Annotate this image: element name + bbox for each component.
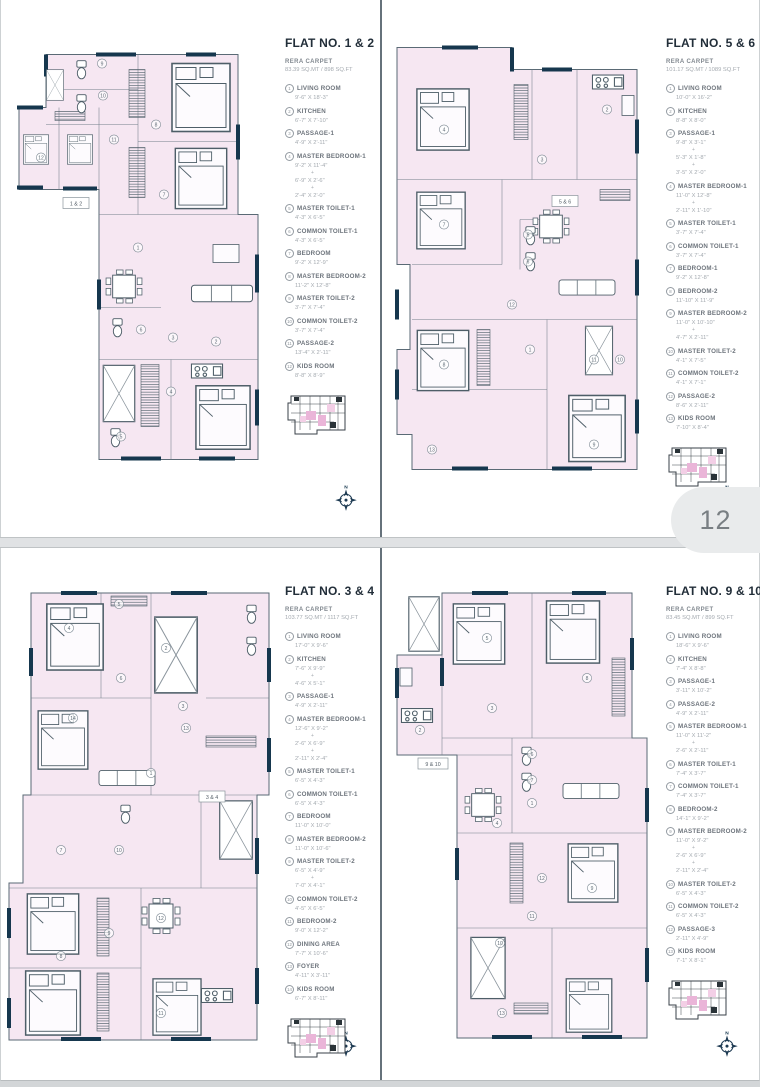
- plus-sign: +: [311, 748, 378, 754]
- room-number-marker-text: 1: [137, 245, 140, 251]
- room-number-marker-text: 12: [158, 916, 164, 922]
- room-number-marker-text: 6: [140, 327, 143, 333]
- room-number-marker-text: 10: [497, 941, 503, 947]
- plus-sign: +: [692, 860, 759, 866]
- room-name: FOYER: [297, 963, 319, 970]
- room-number: 11: [285, 339, 294, 348]
- room-name: MASTER BEDROOM-1: [297, 153, 366, 160]
- floor-plan-1-2: 123456789101112 1 & 2: [1, 28, 281, 496]
- room-item: 3PASSAGE-14'-9" X 2'-11": [285, 129, 378, 146]
- room-dimensions: 8'-8" X 8'-0": [676, 118, 759, 124]
- room-dimensions: 2'-11" X 2'-4": [295, 756, 378, 762]
- panel-flat-9-10: 12345678910111213 9 & 10 N FLAT NO. 9 & …: [382, 548, 760, 1080]
- room-number-marker-text: 10: [100, 93, 106, 99]
- room-number-marker-text: 13: [183, 726, 189, 732]
- panel-flat-5-6: 12345678910111213 5 & 6 N FLAT NO. 5 & 6…: [382, 0, 760, 537]
- room-dimensions: 7'-4" X 3'-7": [676, 771, 759, 777]
- room-item: 13KIDS ROOM7'-10" X 8'-4": [666, 414, 759, 431]
- room-dimensions: 6'-5" X 4'-3": [295, 801, 378, 807]
- room-number: 6: [666, 760, 675, 769]
- room-item: 13KIDS ROOM7'-1" X 8'-1": [666, 947, 759, 964]
- room-item: 8BEDROOM-214'-1" X 9'-2": [666, 805, 759, 822]
- plan-label-3-4: 3 & 4: [199, 791, 225, 802]
- room-name: PASSAGE-1: [297, 130, 334, 137]
- floor-plan-9-10: 12345678910111213 9 & 10: [382, 588, 662, 1053]
- page-number-indicator[interactable]: 12: [671, 487, 760, 553]
- room-dimensions: 7'-1" X 8'-1": [676, 958, 759, 964]
- room-dimensions: 2'-11" X 4'-9": [676, 936, 759, 942]
- svg-text:1 & 2: 1 & 2: [70, 202, 82, 208]
- room-item: 7BEDROOM-19'-2" X 12'-8": [666, 264, 759, 281]
- room-name: MASTER TOILET-1: [678, 220, 736, 227]
- pdf-viewer: 123456789101112 1 & 2 N FLAT NO. 1 & 2 R…: [0, 0, 760, 1087]
- room-dimensions: 2'-6" X 6'-9": [676, 853, 759, 859]
- room-dimensions: 4'-3" X 6'-5": [295, 238, 378, 244]
- room-number: 4: [285, 152, 294, 161]
- room-name: MASTER TOILET-2: [297, 858, 355, 865]
- room-number-marker-text: 7: [163, 192, 166, 198]
- room-number: 1: [285, 632, 294, 641]
- room-number-marker-text: 5: [527, 232, 530, 238]
- room-number-marker-text: 12: [38, 155, 44, 161]
- room-number: 1: [285, 84, 294, 93]
- room-name: DINING AREA: [297, 941, 340, 948]
- room-number: 6: [666, 242, 675, 251]
- room-number: 2: [285, 655, 294, 664]
- room-item: 2KITCHEN6'-7" X 7'-10": [285, 107, 378, 124]
- room-number: 7: [285, 249, 294, 258]
- room-dimensions: 13'-4" X 2'-11": [295, 350, 378, 356]
- room-dimensions: 8'-6" X 2'-11": [676, 403, 759, 409]
- plus-sign: +: [311, 733, 378, 739]
- room-number: 9: [666, 827, 675, 836]
- room-item: 9MASTER TOILET-26'-5" X 4'-9"+7'-0" X 4'…: [285, 857, 378, 889]
- room-item: 5MASTER TOILET-14'-3" X 6'-5": [285, 204, 378, 221]
- room-number-marker-text: 10: [617, 357, 623, 363]
- flat-title: FLAT NO. 5 & 6: [666, 36, 759, 50]
- room-dimensions: 7'-4" X 3'-7": [676, 793, 759, 799]
- svg-text:5 & 6: 5 & 6: [559, 200, 571, 206]
- room-list: 1LIVING ROOM17'-0" X 9'-6"2KITCHEN7'-6" …: [285, 632, 378, 1002]
- room-dimensions: 8'-8" X 8'-9": [295, 373, 378, 379]
- room-item: 7BEDROOM9'-2" X 12'-9": [285, 249, 378, 266]
- room-item: 8BEDROOM-211'-10" X 11'-9": [666, 287, 759, 304]
- room-item: 4PASSAGE-24'-9" X 2'-11": [666, 700, 759, 717]
- room-item: 12PASSAGE-32'-11" X 4'-9": [666, 925, 759, 942]
- room-number-marker-text: 1: [150, 771, 153, 777]
- room-item: 14KIDS ROOM6'-7" X 8'-11": [285, 985, 378, 1002]
- room-dimensions: 2'-11" X 1'-10": [676, 208, 759, 214]
- room-dimensions: 3'-7" X 7'-4": [295, 328, 378, 334]
- room-dimensions: 4'-1" X 7'-1": [676, 380, 759, 386]
- room-number-marker-text: 7: [443, 222, 446, 228]
- room-dimensions: 6'-9" X 2'-6": [295, 178, 378, 184]
- room-number: 8: [285, 835, 294, 844]
- room-dimensions: 11'-0" X 9'-2": [676, 838, 759, 844]
- room-list: 1LIVING ROOM10'-0" X 16'-2"2KITCHEN8'-8"…: [666, 84, 759, 431]
- room-dimensions: 14'-1" X 9'-2": [676, 816, 759, 822]
- room-item: 3PASSAGE-19'-8" X 3'-1"+5'-3" X 1'-8"+3'…: [666, 129, 759, 176]
- room-dimensions: 9'-2" X 12'-8": [676, 275, 759, 281]
- room-number: 11: [666, 902, 675, 911]
- room-name: KIDS ROOM: [678, 948, 716, 955]
- room-item: 13FOYER4'-11" X 3'-11": [285, 962, 378, 979]
- room-number-marker-text: 5: [486, 636, 489, 642]
- plus-sign: +: [311, 673, 378, 679]
- room-dimensions: 7'-0" X 4'-1": [295, 883, 378, 889]
- room-number-marker-text: 11: [111, 137, 116, 143]
- room-name: BEDROOM: [297, 813, 331, 820]
- room-number: 13: [285, 962, 294, 971]
- plus-sign: +: [311, 875, 378, 881]
- room-name: KIDS ROOM: [297, 986, 335, 993]
- room-number-marker-text: 2: [165, 646, 168, 652]
- room-number: 11: [285, 917, 294, 926]
- room-item: 7BEDROOM11'-0" X 10'-0": [285, 812, 378, 829]
- room-number-marker-text: 13: [499, 1011, 505, 1017]
- room-name: MASTER TOILET-1: [297, 205, 355, 212]
- room-dimensions: 3'-5" X 2'-0": [676, 170, 759, 176]
- room-item: 2KITCHEN8'-8" X 8'-0": [666, 107, 759, 124]
- room-item: 6COMMON TOILET-16'-5" X 4'-3": [285, 790, 378, 807]
- room-dimensions: 17'-0" X 9'-6": [295, 643, 378, 649]
- room-name: MASTER BEDROOM-2: [297, 273, 366, 280]
- room-name: KITCHEN: [678, 656, 707, 663]
- room-item: 5MASTER TOILET-16'-5" X 4'-3": [285, 767, 378, 784]
- room-number: 2: [285, 107, 294, 116]
- room-number: 4: [666, 182, 675, 191]
- room-name: BEDROOM-2: [678, 288, 718, 295]
- flat-title: FLAT NO. 1 & 2: [285, 36, 378, 50]
- room-name: PASSAGE-1: [678, 678, 715, 685]
- room-item: 10MASTER TOILET-26'-5" X 4'-3": [666, 880, 759, 897]
- room-number-marker-text: 9: [593, 442, 596, 448]
- room-dimensions: 3'-11" X 10'-2": [676, 688, 759, 694]
- room-number: 5: [285, 204, 294, 213]
- room-name: PASSAGE-2: [297, 340, 334, 347]
- room-item: 11COMMON TOILET-24'-1" X 7'-1": [666, 369, 759, 386]
- room-number: 9: [285, 294, 294, 303]
- key-plan-thumbnail: [667, 974, 731, 1024]
- room-dimensions: 5'-3" X 1'-8": [676, 155, 759, 161]
- room-dimensions: 9'-2" X 11'-4": [295, 163, 378, 169]
- room-name: COMMON TOILET-1: [297, 791, 358, 798]
- plan-label-5-6: 5 & 6: [552, 196, 578, 207]
- room-dimensions: 6'-5" X 4'-3": [676, 913, 759, 919]
- plus-sign: +: [692, 327, 759, 333]
- room-dimensions: 11'-0" X 10'-6": [295, 846, 378, 852]
- plus-sign: +: [692, 200, 759, 206]
- room-item: 3PASSAGE-14'-9" X 2'-11": [285, 692, 378, 709]
- room-number-marker-text: 9: [108, 931, 111, 937]
- room-number-marker-text: 9: [591, 886, 594, 892]
- flat-title: FLAT NO. 9 & 10: [666, 584, 759, 598]
- room-name: PASSAGE-2: [678, 393, 715, 400]
- room-dimensions: 4'-6" X 5'-1": [295, 681, 378, 687]
- plus-sign: +: [692, 147, 759, 153]
- room-item: 12PASSAGE-28'-6" X 2'-11": [666, 392, 759, 409]
- room-item: 2KITCHEN7'-6" X 9'-9"+4'-6" X 5'-1": [285, 655, 378, 687]
- room-dimensions: 2'-6" X 6'-9": [295, 741, 378, 747]
- rera-carpet: RERA CARPET 83.39 SQ.MT / 898 SQ.FT: [285, 59, 378, 73]
- room-name: COMMON TOILET-1: [678, 783, 739, 790]
- room-name: MASTER TOILET-2: [297, 295, 355, 302]
- room-name: MASTER BEDROOM-1: [678, 183, 747, 190]
- room-item: 11COMMON TOILET-26'-5" X 4'-3": [666, 902, 759, 919]
- room-dimensions: 6'-5" X 4'-3": [676, 891, 759, 897]
- room-item: 1LIVING ROOM9'-6" X 18'-3": [285, 84, 378, 101]
- room-item: 4MASTER BEDROOM-112'-6" X 9'-2"+2'-6" X …: [285, 715, 378, 762]
- room-number-marker-text: 6: [527, 259, 530, 265]
- room-name: KIDS ROOM: [297, 363, 335, 370]
- floor-plan-5-6: 12345678910111213 5 & 6: [382, 28, 662, 496]
- room-dimensions: 6'-7" X 8'-11": [295, 996, 378, 1002]
- room-dimensions: 2'-4" X 2'-0": [295, 193, 378, 199]
- room-number: 10: [666, 880, 675, 889]
- room-dimensions: 3'-7" X 7'-4": [676, 230, 759, 236]
- room-item: 8MASTER BEDROOM-211'-0" X 10'-6": [285, 835, 378, 852]
- page-1: 123456789101112 1 & 2 N FLAT NO. 1 & 2 R…: [0, 0, 760, 537]
- room-name: MASTER TOILET-1: [678, 761, 736, 768]
- compass-icon: N: [713, 1030, 741, 1058]
- room-number: 5: [285, 767, 294, 776]
- room-list: 1LIVING ROOM9'-6" X 18'-3"2KITCHEN6'-7" …: [285, 84, 378, 379]
- room-dimensions: 4'-3" X 6'-5": [295, 215, 378, 221]
- page-gap: [0, 537, 760, 548]
- plus-sign: +: [311, 170, 378, 176]
- room-number-marker-text: 3: [541, 157, 544, 163]
- room-name: LIVING ROOM: [678, 85, 722, 92]
- room-name: MASTER TOILET-1: [297, 768, 355, 775]
- room-number: 5: [666, 722, 675, 731]
- room-dimensions: 9'-8" X 3'-1": [676, 140, 759, 146]
- room-number-marker-text: 12: [539, 876, 545, 882]
- room-number: 4: [285, 715, 294, 724]
- room-item: 1LIVING ROOM17'-0" X 9'-6": [285, 632, 378, 649]
- room-number-marker-text: 11: [529, 914, 534, 920]
- page-number: 12: [699, 505, 731, 536]
- room-number: 1: [666, 632, 675, 641]
- room-name: MASTER BEDROOM-1: [297, 716, 366, 723]
- room-name: PASSAGE-1: [297, 693, 334, 700]
- room-item: 7COMMON TOILET-17'-4" X 3'-7": [666, 782, 759, 799]
- flat-title: FLAT NO. 3 & 4: [285, 584, 378, 598]
- plus-sign: +: [692, 845, 759, 851]
- room-number-marker-text: 3: [172, 335, 175, 341]
- room-item: 11BEDROOM-29'-0" X 12'-2": [285, 917, 378, 934]
- room-item: 9MASTER BEDROOM-211'-0" X 9'-2"+2'-6" X …: [666, 827, 759, 874]
- room-number-marker-text: 7: [60, 848, 63, 854]
- page-2: 1234567891011121314 3 & 4 N FLAT NO. 3 &…: [0, 548, 760, 1081]
- room-item: 2KITCHEN7'-4" X 8'-8": [666, 655, 759, 672]
- panel-flat-3-4: 1234567891011121314 3 & 4 N FLAT NO. 3 &…: [1, 548, 380, 1080]
- key-plan-thumbnail: [286, 389, 350, 439]
- room-name: LIVING ROOM: [678, 633, 722, 640]
- room-item: 9MASTER TOILET-23'-7" X 7'-4": [285, 294, 378, 311]
- plus-sign: +: [311, 185, 378, 191]
- room-number: 2: [666, 107, 675, 116]
- room-dimensions: 10'-0" X 16'-2": [676, 95, 759, 101]
- rera-carpet: RERA CARPET 103.77 SQ.MT / 1117 SQ.FT: [285, 607, 378, 621]
- room-number: 3: [285, 692, 294, 701]
- room-dimensions: 7'-4" X 8'-8": [676, 666, 759, 672]
- room-name: MASTER BEDROOM-2: [678, 828, 747, 835]
- room-number: 1: [666, 84, 675, 93]
- room-dimensions: 4'-7" X 2'-11": [676, 335, 759, 341]
- room-number-marker-text: 2: [215, 339, 218, 345]
- room-number: 8: [666, 805, 675, 814]
- room-dimensions: 4'-9" X 2'-11": [295, 703, 378, 709]
- room-item: 4MASTER BEDROOM-19'-2" X 11'-4"+6'-9" X …: [285, 152, 378, 199]
- key-plan-thumbnail: [286, 1012, 350, 1062]
- room-number: 2: [666, 655, 675, 664]
- room-name: BEDROOM-2: [297, 918, 337, 925]
- room-item: 8MASTER BEDROOM-211'-2" X 12'-8": [285, 272, 378, 289]
- room-number-marker-text: 12: [509, 302, 515, 308]
- room-number-marker-text: 1: [529, 347, 532, 353]
- room-name: COMMON TOILET-1: [678, 243, 739, 250]
- svg-text:9 & 10: 9 & 10: [425, 762, 440, 768]
- room-number-marker-text: 5: [118, 602, 121, 608]
- room-number: 12: [666, 392, 675, 401]
- room-dimensions: 4'-1" X 7'-5": [676, 358, 759, 364]
- room-number-marker-text: 2: [606, 107, 609, 113]
- room-dimensions: 11'-0" X 10'-10": [676, 320, 759, 326]
- room-number: 12: [285, 362, 294, 371]
- room-number-marker-text: 3: [182, 704, 185, 710]
- room-item: 10COMMON TOILET-23'-7" X 7'-4": [285, 317, 378, 334]
- room-number: 7: [666, 264, 675, 273]
- room-name: COMMON TOILET-2: [678, 370, 739, 377]
- room-item: 6COMMON TOILET-13'-7" X 7'-4": [666, 242, 759, 259]
- room-number: 6: [285, 227, 294, 236]
- room-name: KITCHEN: [678, 108, 707, 115]
- room-name: PASSAGE-1: [678, 130, 715, 137]
- room-name: BEDROOM-2: [678, 806, 718, 813]
- room-number-marker-text: 4: [496, 821, 499, 827]
- room-number-marker-text: 1: [531, 801, 534, 807]
- room-number-marker-text: 8: [155, 122, 158, 128]
- room-name: KITCHEN: [297, 108, 326, 115]
- room-number: 4: [666, 700, 675, 709]
- room-item: 9MASTER BEDROOM-211'-0" X 10'-10"+4'-7" …: [666, 309, 759, 341]
- compass-icon: N: [332, 484, 360, 512]
- legend-flat-5-6: FLAT NO. 5 & 6 RERA CARPET 101.17 SQ.MT …: [666, 36, 759, 496]
- room-number: 10: [285, 317, 294, 326]
- room-number: 10: [285, 895, 294, 904]
- room-name: LIVING ROOM: [297, 85, 341, 92]
- viewer-background-strip: [0, 1081, 760, 1087]
- room-number-marker-text: 7: [531, 778, 534, 784]
- room-name: MASTER TOILET-2: [678, 348, 736, 355]
- room-item: 3PASSAGE-13'-11" X 10'-2": [666, 677, 759, 694]
- room-number-marker-text: 13: [429, 447, 435, 453]
- room-number: 12: [666, 925, 675, 934]
- room-number-marker-text: 3: [491, 706, 494, 712]
- room-dimensions: 6'-5" X 4'-3": [295, 778, 378, 784]
- legend-flat-1-2: FLAT NO. 1 & 2 RERA CARPET 83.39 SQ.MT /…: [285, 36, 378, 444]
- room-dimensions: 6'-7" X 7'-10": [295, 118, 378, 124]
- room-number: 13: [666, 947, 675, 956]
- room-number: 11: [666, 369, 675, 378]
- room-item: 10MASTER TOILET-24'-1" X 7'-5": [666, 347, 759, 364]
- room-number-marker-text: 9: [101, 61, 104, 67]
- room-dimensions: 11'-0" X 10'-0": [295, 823, 378, 829]
- room-dimensions: 18'-6" X 9'-6": [676, 643, 759, 649]
- room-number: 9: [666, 309, 675, 318]
- key-plan-thumbnail: [667, 441, 731, 491]
- rera-carpet: RERA CARPET 83.45 SQ.MT / 899 SQ.FT: [666, 607, 759, 621]
- room-number: 10: [666, 347, 675, 356]
- room-number: 8: [666, 287, 675, 296]
- room-dimensions: 7'-6" X 9'-9": [295, 666, 378, 672]
- room-number-marker-text: 4: [170, 389, 173, 395]
- room-number: 9: [285, 857, 294, 866]
- room-name: BEDROOM: [297, 250, 331, 257]
- room-number: 3: [285, 129, 294, 138]
- room-number: 12: [285, 940, 294, 949]
- room-number-marker-text: 8: [586, 676, 589, 682]
- room-number-marker-text: 2: [419, 728, 422, 734]
- room-item: 12DINING AREA7'-7" X 10'-6": [285, 940, 378, 957]
- room-name: COMMON TOILET-1: [297, 228, 358, 235]
- room-item: 6MASTER TOILET-17'-4" X 3'-7": [666, 760, 759, 777]
- room-number-marker-text: 4: [443, 127, 446, 133]
- room-number-marker-text: 10: [116, 848, 122, 854]
- room-dimensions: 12'-6" X 9'-2": [295, 726, 378, 732]
- room-name: MASTER TOILET-2: [678, 881, 736, 888]
- room-dimensions: 11'-0" X 11'-2": [676, 733, 759, 739]
- room-dimensions: 7'-7" X 10'-6": [295, 951, 378, 957]
- room-dimensions: 11'-0" X 12'-8": [676, 193, 759, 199]
- room-item: 10COMMON TOILET-24'-5" X 6'-5": [285, 895, 378, 912]
- room-dimensions: 2'-6" X 2'-11": [676, 748, 759, 754]
- room-name: LIVING ROOM: [297, 633, 341, 640]
- room-dimensions: 4'-5" X 6'-5": [295, 906, 378, 912]
- room-number: 7: [285, 812, 294, 821]
- room-number: 3: [666, 129, 675, 138]
- room-name: COMMON TOILET-2: [678, 903, 739, 910]
- room-number-marker-text: 14: [70, 716, 76, 722]
- room-item: 5MASTER TOILET-13'-7" X 7'-4": [666, 219, 759, 236]
- plan-label-1-2: 1 & 2: [63, 198, 89, 209]
- room-name: BEDROOM-1: [678, 265, 718, 272]
- room-dimensions: 4'-9" X 2'-11": [676, 711, 759, 717]
- svg-text:N: N: [344, 484, 348, 490]
- room-name: PASSAGE-2: [678, 701, 715, 708]
- room-dimensions: 4'-9" X 2'-11": [295, 140, 378, 146]
- room-number-marker-text: 8: [443, 362, 446, 368]
- room-number: 5: [666, 219, 675, 228]
- room-item: 12KIDS ROOM8'-8" X 8'-9": [285, 362, 378, 379]
- plus-sign: +: [692, 162, 759, 168]
- room-number: 7: [666, 782, 675, 791]
- plan-label-9-10: 9 & 10: [418, 758, 448, 769]
- room-number-marker-text: 6: [531, 752, 534, 758]
- room-number-marker-text: 11: [158, 1011, 163, 1017]
- room-dimensions: 9'-6" X 18'-3": [295, 95, 378, 101]
- room-name: MASTER BEDROOM-2: [678, 310, 747, 317]
- room-number-marker-text: 11: [591, 357, 596, 363]
- room-dimensions: 11'-2" X 12'-8": [295, 283, 378, 289]
- room-number-marker-text: 8: [60, 954, 63, 960]
- floor-plan-3-4: 1234567891011121314 3 & 4: [1, 588, 281, 1053]
- room-dimensions: 3'-7" X 7'-4": [676, 253, 759, 259]
- room-dimensions: 7'-10" X 8'-4": [676, 425, 759, 431]
- room-number: 6: [285, 790, 294, 799]
- room-dimensions: 3'-7" X 7'-4": [295, 305, 378, 311]
- svg-text:N: N: [725, 1030, 729, 1036]
